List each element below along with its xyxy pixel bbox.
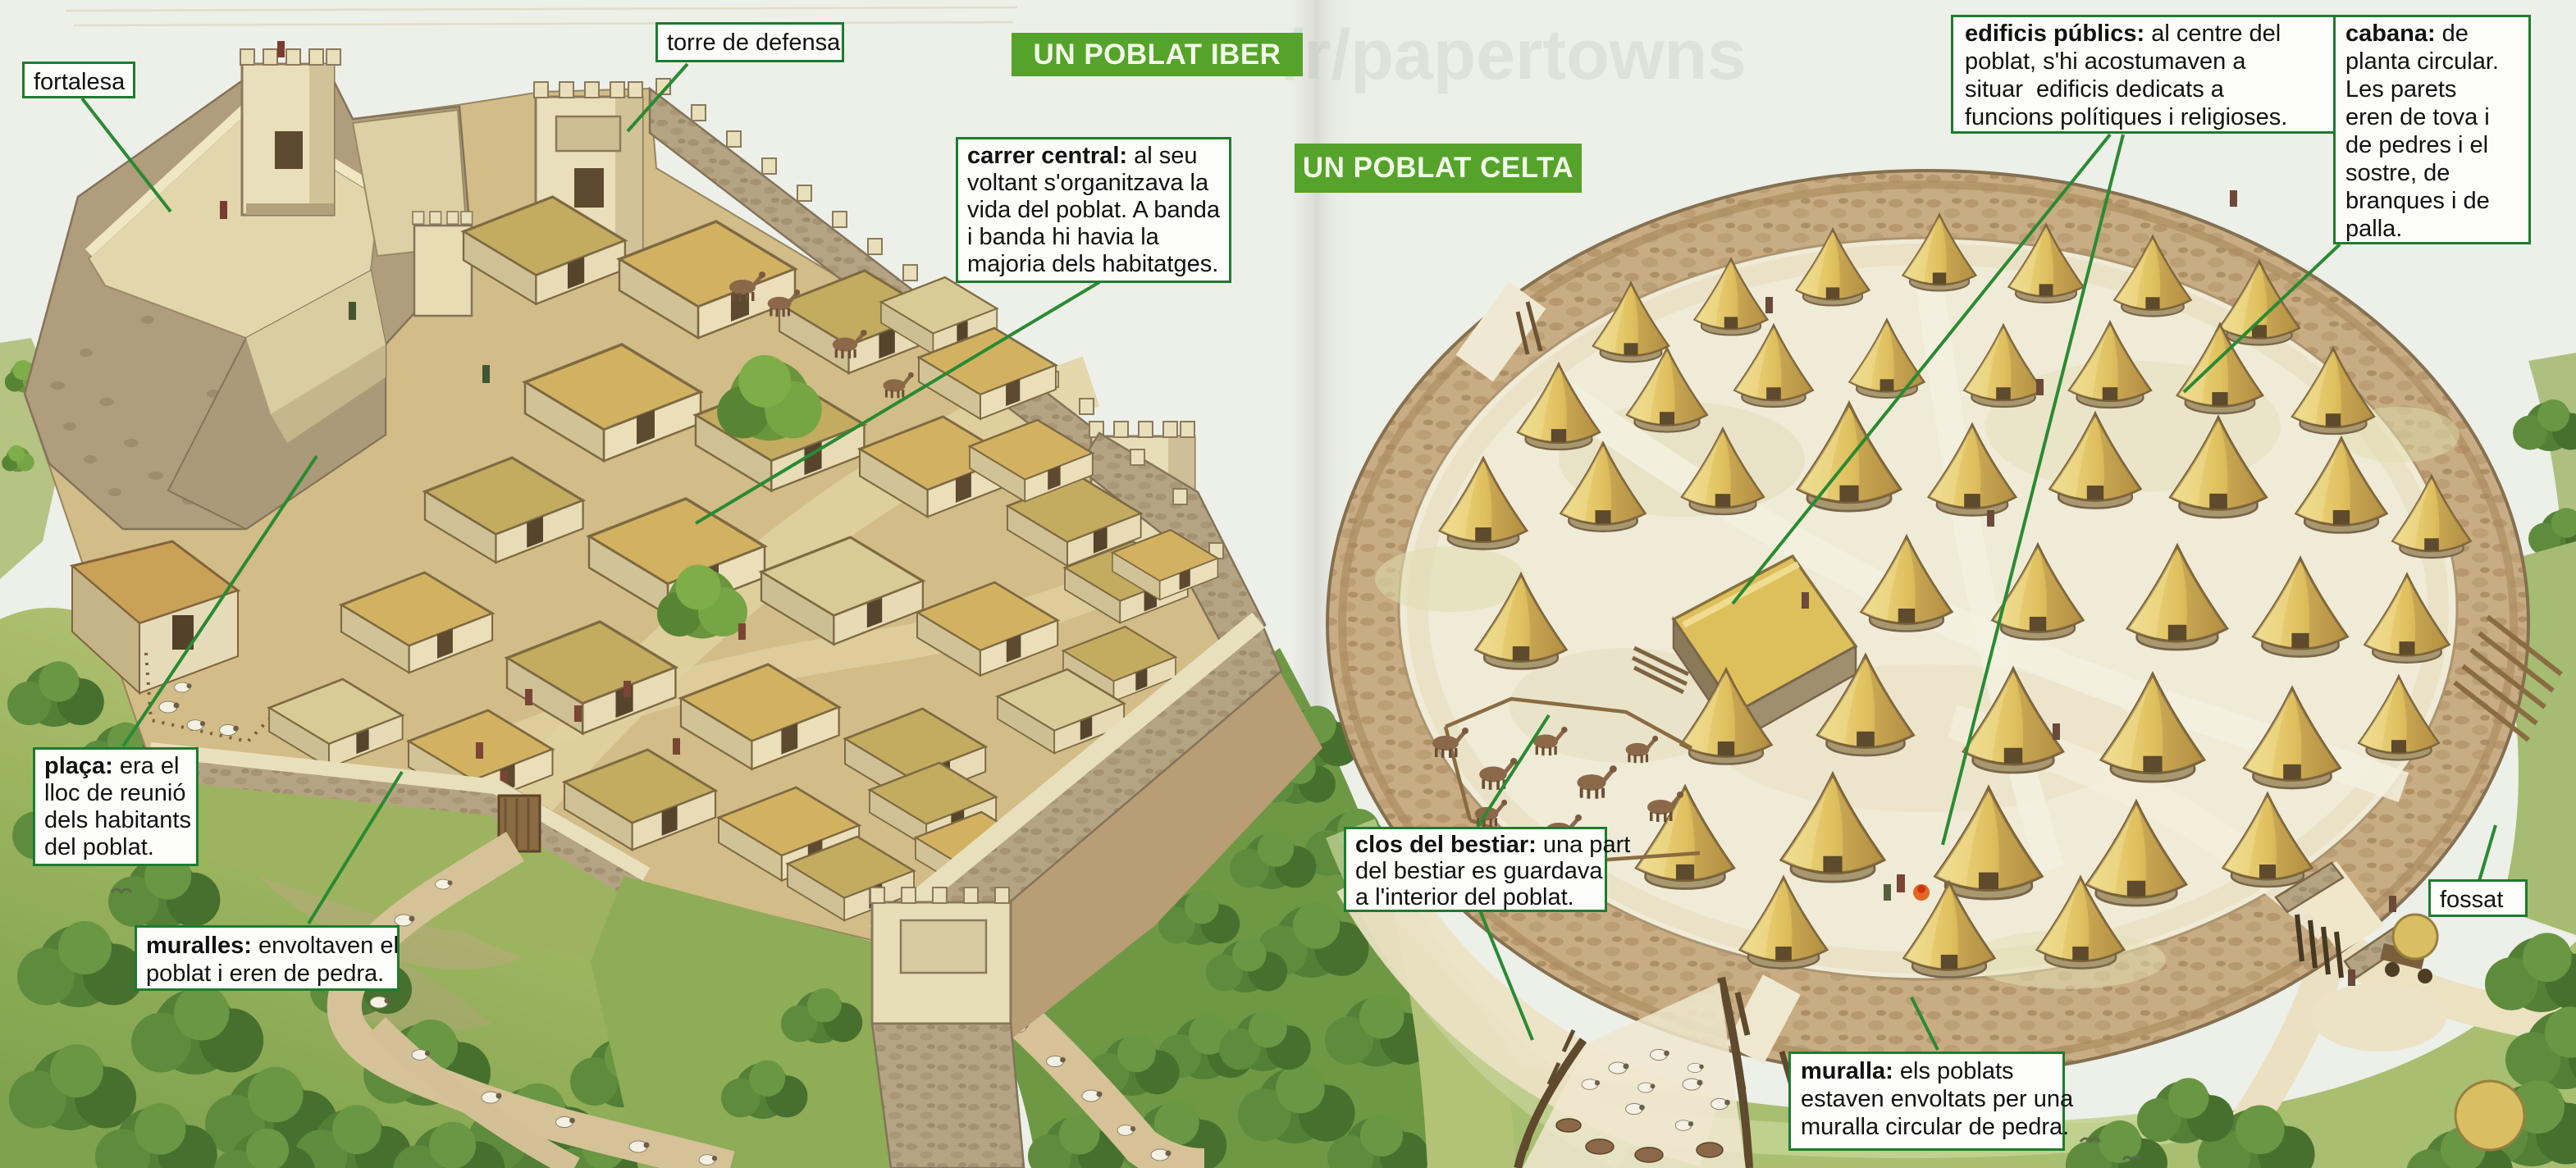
svg-text:/r/papertowns: /r/papertowns: [1284, 16, 1747, 94]
